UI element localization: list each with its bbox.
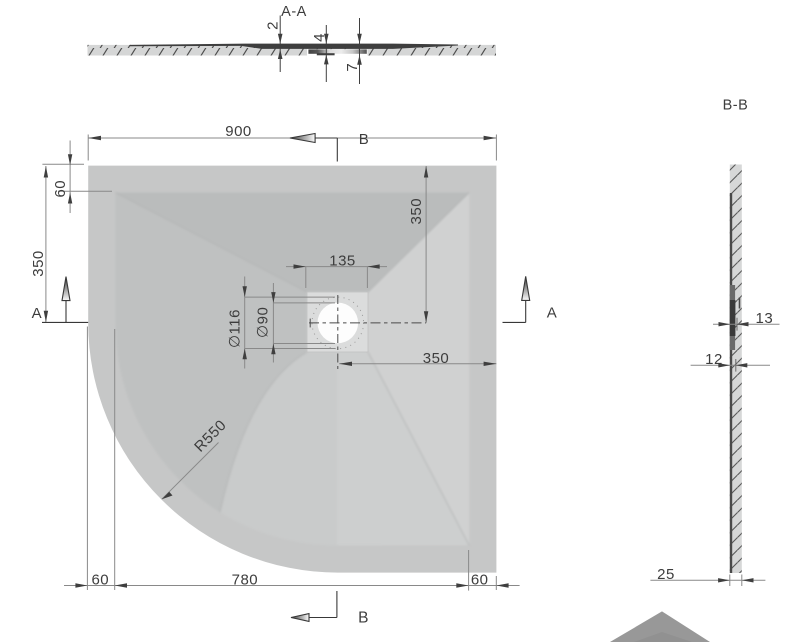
svg-text:60: 60 xyxy=(471,571,489,588)
svg-text:135: 135 xyxy=(329,253,356,270)
svg-text:A-A: A-A xyxy=(281,4,307,20)
svg-text:12: 12 xyxy=(705,351,723,368)
svg-text:B-B: B-B xyxy=(723,97,749,113)
svg-text:∅90: ∅90 xyxy=(254,307,271,338)
svg-text:25: 25 xyxy=(657,566,675,583)
svg-text:350: 350 xyxy=(408,198,425,225)
svg-text:4: 4 xyxy=(311,33,328,42)
svg-text:13: 13 xyxy=(756,310,774,327)
svg-text:B: B xyxy=(359,131,369,148)
svg-text:780: 780 xyxy=(232,571,259,588)
svg-text:7: 7 xyxy=(344,63,361,72)
svg-text:60: 60 xyxy=(91,571,109,588)
svg-text:350: 350 xyxy=(30,250,47,277)
svg-text:B: B xyxy=(358,609,368,626)
svg-text:900: 900 xyxy=(225,123,252,140)
svg-text:60: 60 xyxy=(52,180,69,198)
svg-text:A: A xyxy=(547,304,557,321)
svg-text:∅116: ∅116 xyxy=(227,309,244,348)
svg-text:A: A xyxy=(32,305,42,322)
svg-text:350: 350 xyxy=(423,350,450,367)
svg-text:2: 2 xyxy=(264,21,281,30)
